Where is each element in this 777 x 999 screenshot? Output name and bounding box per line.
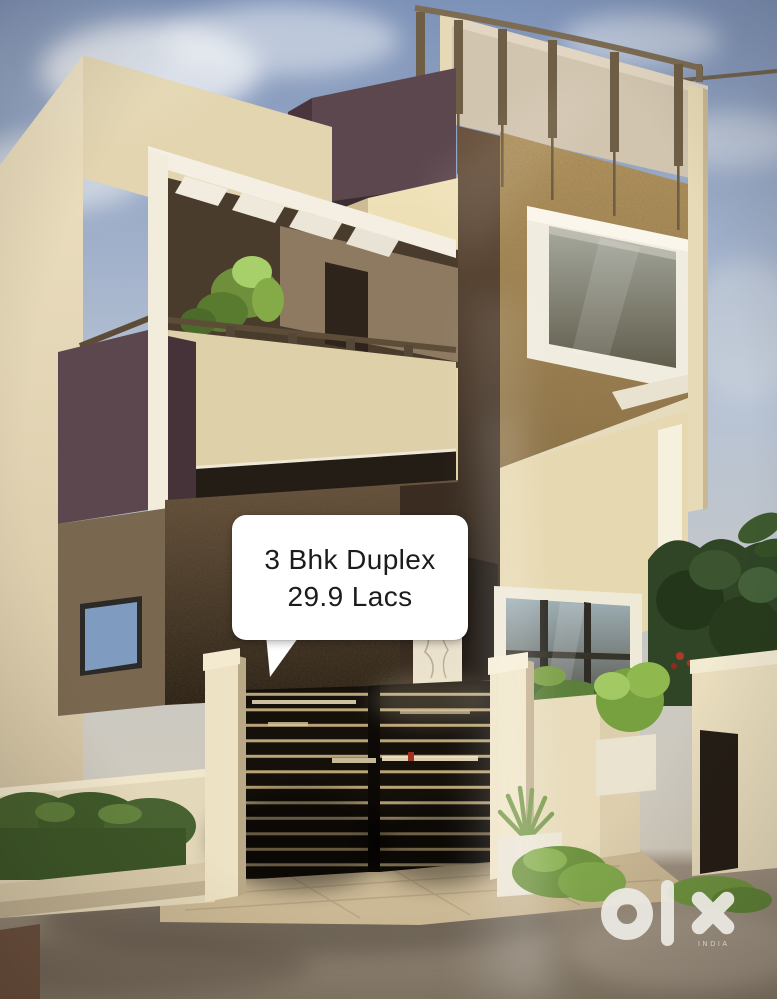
vignette: [0, 0, 777, 999]
house-render-illustration: [0, 0, 777, 999]
listing-photo: 3 Bhk Duplex 29.9 Lacs INDIA: [0, 0, 777, 999]
caption-bubble: 3 Bhk Duplex 29.9 Lacs: [232, 515, 468, 640]
caption-line-1: 3 Bhk Duplex: [264, 541, 435, 578]
olx-country-label: INDIA: [698, 941, 730, 948]
olx-logo: INDIA: [594, 878, 766, 962]
caption-bubble-tail: [254, 634, 306, 680]
caption-line-2: 29.9 Lacs: [287, 578, 412, 615]
